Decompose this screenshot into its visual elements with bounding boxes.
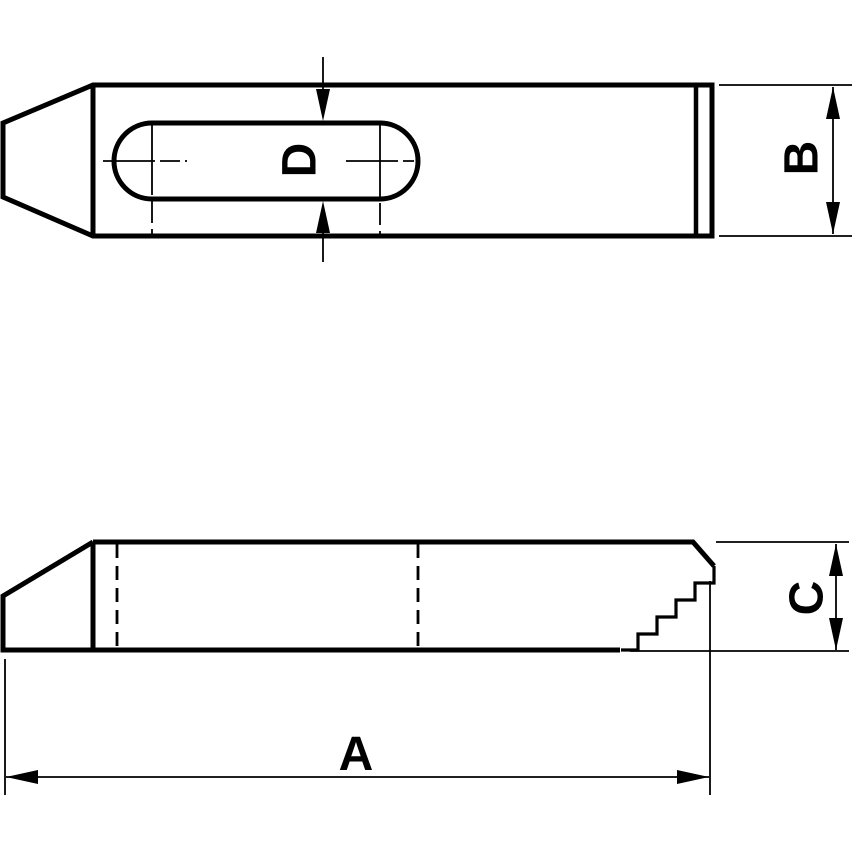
dim-b-label: B [776, 141, 829, 176]
serrated-steps [621, 566, 714, 650]
dim-c-label: C [781, 581, 834, 616]
side-view: C A [3, 542, 849, 795]
dim-b-arrow-down-icon [826, 202, 840, 234]
technical-drawing: D B [0, 0, 854, 854]
dim-c-arrow-down-icon [829, 618, 843, 650]
dim-d-label: D [274, 143, 327, 178]
side-view-outline [3, 542, 714, 650]
top-view: D B [3, 57, 852, 262]
dim-a-label: A [339, 728, 374, 781]
dimension-a: A [5, 581, 710, 795]
dimension-c: C [630, 542, 849, 651]
dim-c-arrow-up-icon [829, 544, 843, 576]
dim-b-arrow-up-icon [826, 87, 840, 119]
dim-a-arrow-right-icon [677, 770, 709, 784]
drawing-canvas: D B [0, 0, 854, 854]
dimension-d: D [274, 57, 331, 262]
dim-a-arrow-left-icon [6, 770, 38, 784]
dimension-b: B [719, 85, 852, 236]
dim-d-arrow-up-icon [316, 201, 330, 233]
dim-d-arrow-down-icon [316, 89, 330, 121]
